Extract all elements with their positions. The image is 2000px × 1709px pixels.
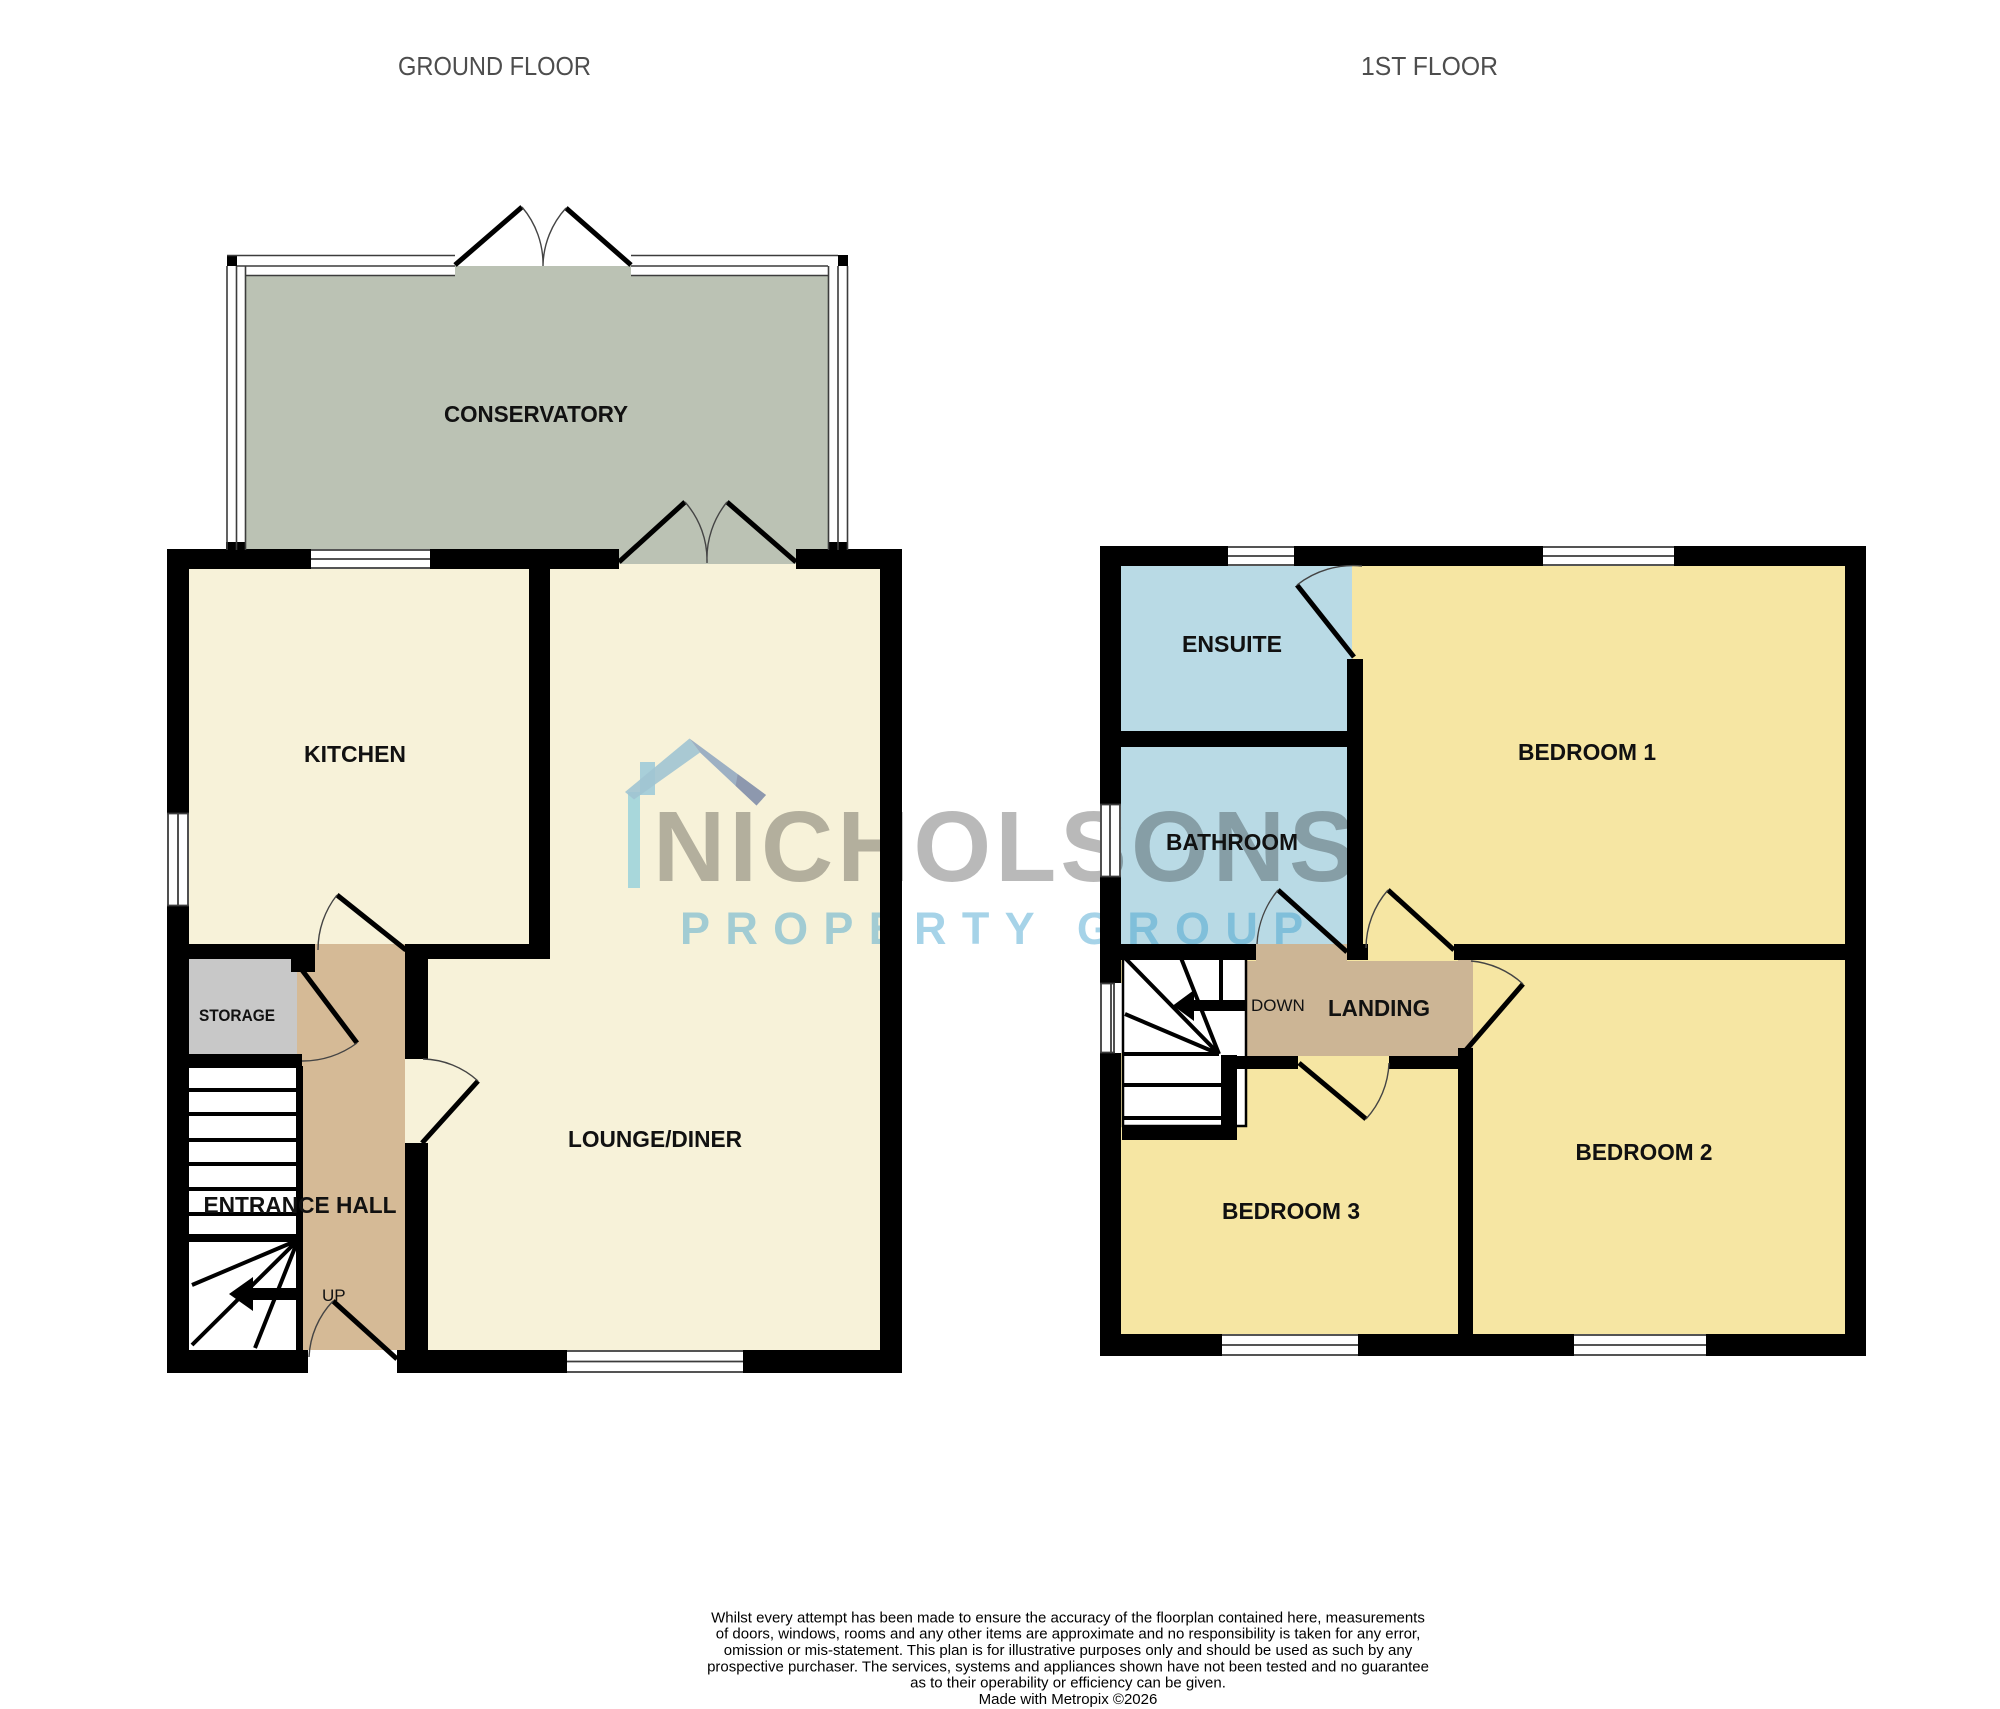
svg-text:KITCHEN: KITCHEN bbox=[304, 741, 406, 767]
svg-text:Made with Metropix ©2026: Made with Metropix ©2026 bbox=[979, 1691, 1158, 1708]
svg-text:of doors, windows, rooms and a: of doors, windows, rooms and any other i… bbox=[716, 1626, 1421, 1643]
svg-text:BATHROOM: BATHROOM bbox=[1166, 829, 1298, 855]
svg-text:BEDROOM 2: BEDROOM 2 bbox=[1576, 1139, 1713, 1165]
svg-text:UP: UP bbox=[322, 1286, 346, 1305]
svg-text:Whilst every attempt has been: Whilst every attempt has been made to en… bbox=[711, 1609, 1425, 1626]
svg-text:ENSUITE: ENSUITE bbox=[1182, 631, 1282, 657]
svg-text:STORAGE: STORAGE bbox=[199, 1007, 275, 1025]
svg-text:LANDING: LANDING bbox=[1328, 995, 1430, 1021]
svg-text:BEDROOM 1: BEDROOM 1 bbox=[1518, 739, 1656, 765]
svg-text:omission or mis-statement. Thi: omission or mis-statement. This plan is … bbox=[724, 1642, 1413, 1659]
svg-text:GROUND FLOOR: GROUND FLOOR bbox=[398, 51, 591, 81]
svg-text:ENTRANCE HALL: ENTRANCE HALL bbox=[204, 1192, 397, 1218]
svg-text:DOWN: DOWN bbox=[1251, 996, 1305, 1015]
svg-text:BEDROOM 3: BEDROOM 3 bbox=[1222, 1198, 1360, 1224]
svg-text:CONSERVATORY: CONSERVATORY bbox=[444, 401, 628, 427]
svg-text:prospective purchaser. The ser: prospective purchaser. The services, sys… bbox=[707, 1658, 1429, 1675]
svg-text:1ST FLOOR: 1ST FLOOR bbox=[1361, 51, 1498, 81]
svg-text:LOUNGE/DINER: LOUNGE/DINER bbox=[568, 1126, 742, 1152]
svg-text:as to their operability or eff: as to their operability or efficiency ca… bbox=[910, 1675, 1226, 1692]
